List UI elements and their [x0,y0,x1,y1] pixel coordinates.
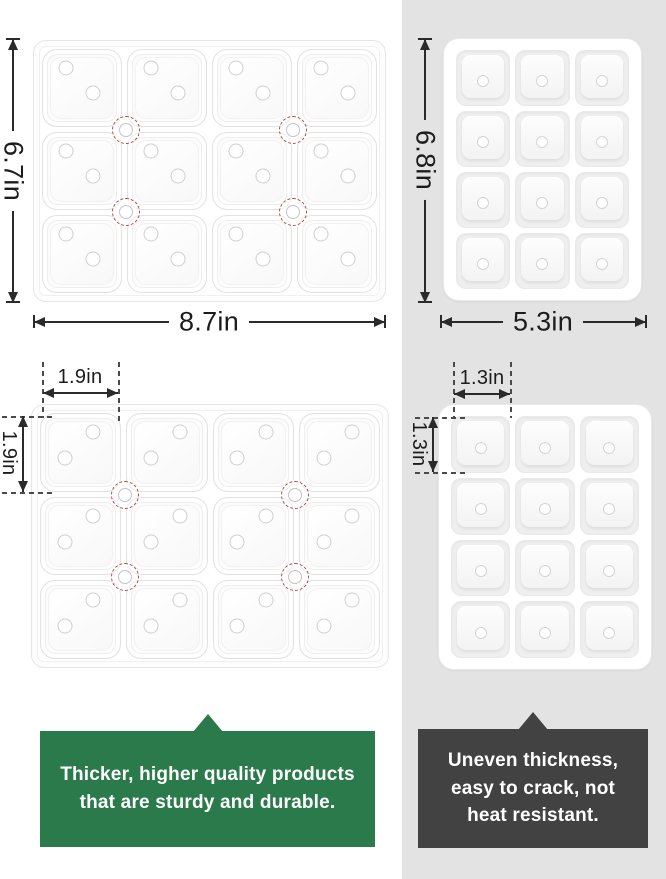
vent-hole [85,168,100,183]
callout-text-line: that are sturdy and durable. [80,789,336,817]
good-tray-height-label: 6.7in [0,131,27,211]
dimension-endcap [33,315,35,328]
vent-hole [314,61,329,76]
tray-cell [212,215,292,293]
tray-cell [515,233,569,289]
vent-hole [340,85,355,100]
tray-cell-inner [221,505,286,568]
vent-hole [539,627,551,639]
vent-hole [230,618,245,633]
tray-cell-inner [134,421,199,484]
vent-hole [596,136,608,148]
vent-hole [57,618,72,633]
tray-cell [456,172,510,228]
red-dashed-highlight-circle [111,481,139,509]
cell-width-dimension-line [454,393,510,395]
vent-hole [596,75,608,87]
bad-cell-height-label: 1.3in [409,422,429,467]
extension-line [415,472,467,474]
tray-cell-inner [221,588,286,651]
vent-hole [314,227,329,242]
vent-hole [475,503,487,515]
tray-cell-inner [307,505,372,568]
tray-cell [451,416,510,473]
vent-hole [316,535,331,550]
bad-tray-width-label: 5.3in [503,309,583,336]
tray-cell [451,540,510,597]
tray-cell-inner [48,588,113,651]
vent-hole [229,144,244,159]
vent-hole [475,565,487,577]
vent-hole [475,442,487,454]
vent-hole [170,85,185,100]
red-dashed-highlight-circle [112,198,140,226]
vent-hole [86,509,101,524]
vent-hole [144,535,159,550]
tray-cell [42,215,122,293]
dimension-endcap [645,315,647,328]
vent-hole [536,258,548,270]
vent-hole [57,535,72,550]
vent-hole [172,592,187,607]
tray-cell [575,233,629,289]
vent-hole [539,565,551,577]
vent-hole [230,451,245,466]
bad-cell-width-label: 1.3in [460,368,505,388]
tray-cell [580,478,639,535]
vent-hole [85,85,100,100]
tray-cell [297,49,377,127]
cell-height-dimension-line [22,416,24,492]
vent-hole [229,227,244,242]
vent-hole [255,251,270,266]
tray-cell [42,49,122,127]
tray-cell [127,49,207,127]
vent-hole [477,75,489,87]
tray-cell [580,601,639,658]
tray-cell [212,132,292,210]
bad-tray-height-label: 6.8in [412,120,439,200]
vent-hole [255,85,270,100]
tray-cell [212,49,292,127]
vent-hole [85,251,100,266]
tray-cell [575,172,629,228]
vent-hole [345,425,360,440]
dimension-endcap [440,315,442,328]
tray-cell [515,50,569,106]
dimension-endcap [6,301,20,303]
vent-hole [477,136,489,148]
red-dashed-highlight-circle [281,481,309,509]
vent-hole [144,227,159,242]
tray-cell [456,233,510,289]
tray-cell-inner [134,505,199,568]
vent-hole [144,451,159,466]
tray-cell [297,132,377,210]
good-tray-width-label: 8.7in [169,309,249,336]
dimension-endcap [418,301,432,303]
tray-cell [456,50,510,106]
tray-cell [299,497,380,576]
vent-hole [603,503,615,515]
vent-hole [596,197,608,209]
vent-hole [475,627,487,639]
good-cell-height-label: 1.9in [0,431,19,476]
vent-hole [316,451,331,466]
tray-cell [40,497,121,576]
tray-cell [42,132,122,210]
vent-hole [603,565,615,577]
vent-hole [345,592,360,607]
tray-cell [515,111,569,167]
tray-cell [515,478,574,535]
product-comparison-image: 6.7in 8.7in 6.8in 5.3in 1.9in 1.9in 1.3i… [0,0,666,879]
vent-hole [603,442,615,454]
bad-tray-top [443,38,642,301]
tray-cell [126,497,207,576]
tray-grid [451,416,639,658]
vent-hole [57,451,72,466]
dimension-endcap [384,315,386,328]
tray-cell [575,111,629,167]
tray-cell [127,132,207,210]
vent-hole [477,258,489,270]
tray-cell [515,540,574,597]
vent-hole [144,61,159,76]
vent-hole [477,197,489,209]
tray-cell [213,497,294,576]
tray-cell [456,111,510,167]
tray-cell [515,172,569,228]
red-dashed-highlight-circle [281,563,309,591]
vent-hole [230,535,245,550]
tray-cell [451,601,510,658]
callout-text-line: easy to crack, not [451,775,615,803]
vent-hole [144,144,159,159]
extension-line [2,492,56,494]
vent-hole [59,227,74,242]
cell-width-dimension-line [43,392,118,394]
tray-grid [42,49,377,293]
tray-cell-inner [134,588,199,651]
tray-cell [451,478,510,535]
tray-cell [515,416,574,473]
tray-cell [580,540,639,597]
vent-hole [596,258,608,270]
good-product-callout: Thicker, higher quality products that ar… [40,731,375,847]
tray-cell-inner [48,505,113,568]
tray-cell [297,215,377,293]
tray-cell [40,413,121,492]
extension-line [2,416,54,418]
vent-hole [229,61,244,76]
callout-pointer-icon [193,714,223,732]
vent-hole [539,503,551,515]
tray-cell-inner [221,421,286,484]
callout-pointer-icon [518,712,548,730]
dimension-endcap [6,38,20,40]
vent-hole [340,168,355,183]
tray-cell [126,413,207,492]
tray-cell [40,580,121,659]
tray-cell-inner [307,421,372,484]
tray-cell-inner [307,588,372,651]
extension-line [415,417,467,419]
vent-hole [316,618,331,633]
callout-text-line: Thicker, higher quality products [60,761,355,789]
good-tray-bottom [31,404,389,668]
vent-hole [86,425,101,440]
vent-hole [258,509,273,524]
vent-hole [340,251,355,266]
cell-height-dimension-line [432,417,434,472]
callout-text-line: heat resistant. [467,802,599,830]
vent-hole [172,425,187,440]
vent-hole [258,592,273,607]
vent-hole [539,442,551,454]
tray-cell [515,601,574,658]
tray-cell [126,580,207,659]
vent-hole [170,168,185,183]
vent-hole [345,509,360,524]
red-dashed-highlight-circle [112,116,140,144]
vent-hole [536,75,548,87]
vent-hole [59,61,74,76]
vent-hole [255,168,270,183]
tray-cell [213,580,294,659]
callout-text-line: Uneven thickness, [448,747,618,775]
good-cell-width-label: 1.9in [58,367,103,387]
vent-hole [536,136,548,148]
tray-cell [299,413,380,492]
tray-cell-inner [48,421,113,484]
vent-hole [172,509,187,524]
dimension-endcap [418,38,432,40]
tray-cell [575,50,629,106]
vent-hole [258,425,273,440]
tray-cell [127,215,207,293]
vent-hole [144,618,159,633]
red-dashed-highlight-circle [279,116,307,144]
tray-grid [40,413,380,659]
extension-line [118,362,120,424]
vent-hole [170,251,185,266]
tray-cell [213,413,294,492]
vent-hole [59,144,74,159]
vent-hole [603,627,615,639]
red-dashed-highlight-circle [111,563,139,591]
tray-cell [299,580,380,659]
vent-hole [86,592,101,607]
bad-tray-bottom [438,404,652,670]
bad-product-callout: Uneven thickness, easy to crack, not hea… [418,729,648,848]
extension-line [510,362,512,418]
vent-hole [536,197,548,209]
red-dashed-highlight-circle [279,198,307,226]
tray-grid [456,50,629,289]
tray-cell [580,416,639,473]
vent-hole [314,144,329,159]
good-tray-top [33,40,386,302]
